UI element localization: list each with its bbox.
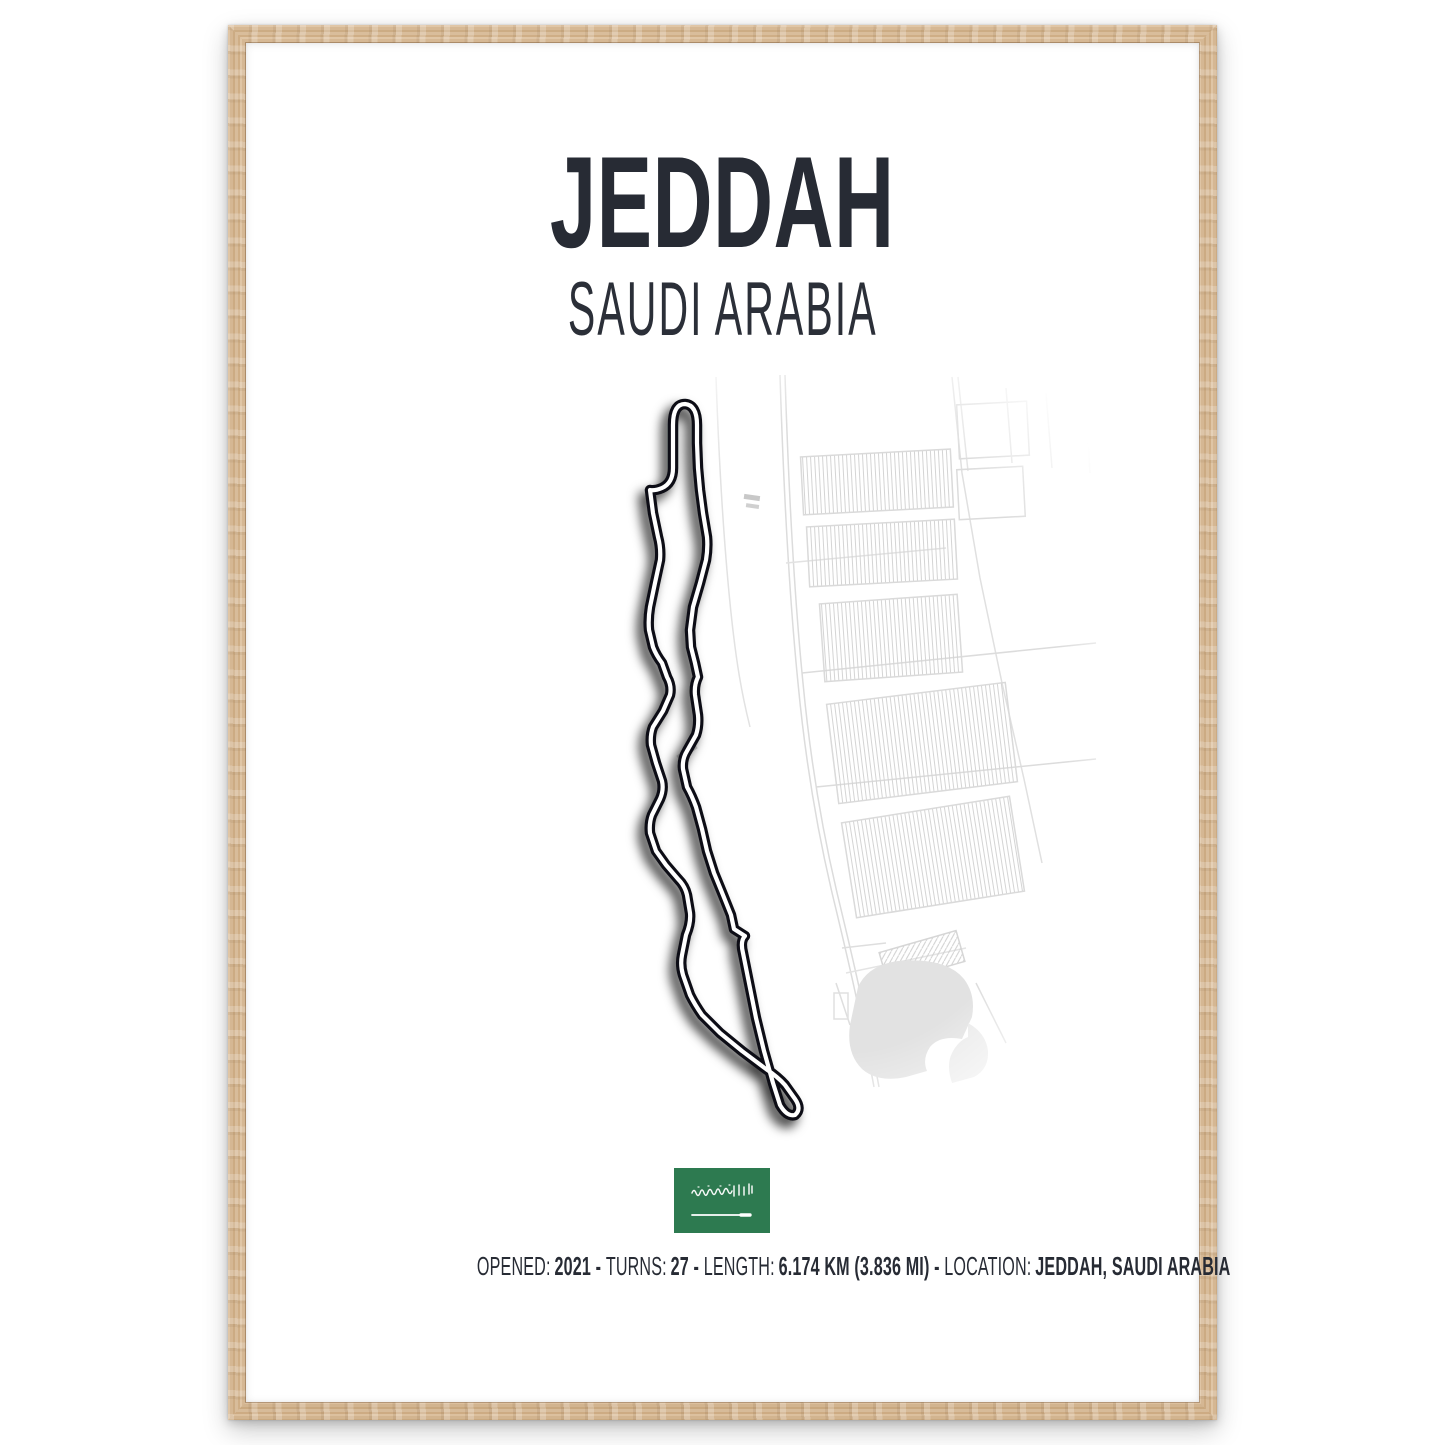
track-road	[649, 404, 799, 1115]
stat-separator: -	[591, 1251, 606, 1281]
frame-rail-top	[228, 25, 1217, 43]
stat-label-turns: TURNS:	[606, 1251, 667, 1281]
circuit-stats-text: OPENED:2021 - TURNS:27 - LENGTH:6.174 KM…	[477, 1251, 1231, 1282]
frame-rail-left	[228, 25, 246, 1420]
stat-separator: -	[929, 1251, 944, 1281]
picture-frame: JEDDAH SAUDI ARABIA	[228, 25, 1217, 1420]
stat-value-opened: 2021	[554, 1251, 591, 1281]
stat-value-length: 6.174 KM (3.836 MI)	[779, 1251, 930, 1281]
stat-label-opened: OPENED:	[477, 1251, 551, 1281]
poster: JEDDAH SAUDI ARABIA	[246, 43, 1199, 1402]
stat-value-location: JEDDAH, SAUDI ARABIA	[1035, 1251, 1230, 1281]
circuit-art	[246, 43, 1199, 1402]
map-stadium	[849, 960, 988, 1083]
track-outline	[649, 404, 799, 1115]
city-map-background	[676, 375, 1096, 1087]
saudi-arabia-flag-icon	[674, 1168, 770, 1233]
circuit-stats-line: OPENED:2021 - TURNS:27 - LENGTH:6.174 KM…	[246, 1251, 1199, 1282]
frame-rail-bottom	[228, 1402, 1217, 1420]
stat-value-turns: 27	[671, 1251, 689, 1281]
track-centerline	[649, 404, 799, 1115]
stat-label-location: LOCATION:	[944, 1251, 1031, 1281]
frame-rail-right	[1199, 25, 1217, 1420]
stat-label-length: LENGTH:	[704, 1251, 775, 1281]
stat-separator: -	[689, 1251, 704, 1281]
